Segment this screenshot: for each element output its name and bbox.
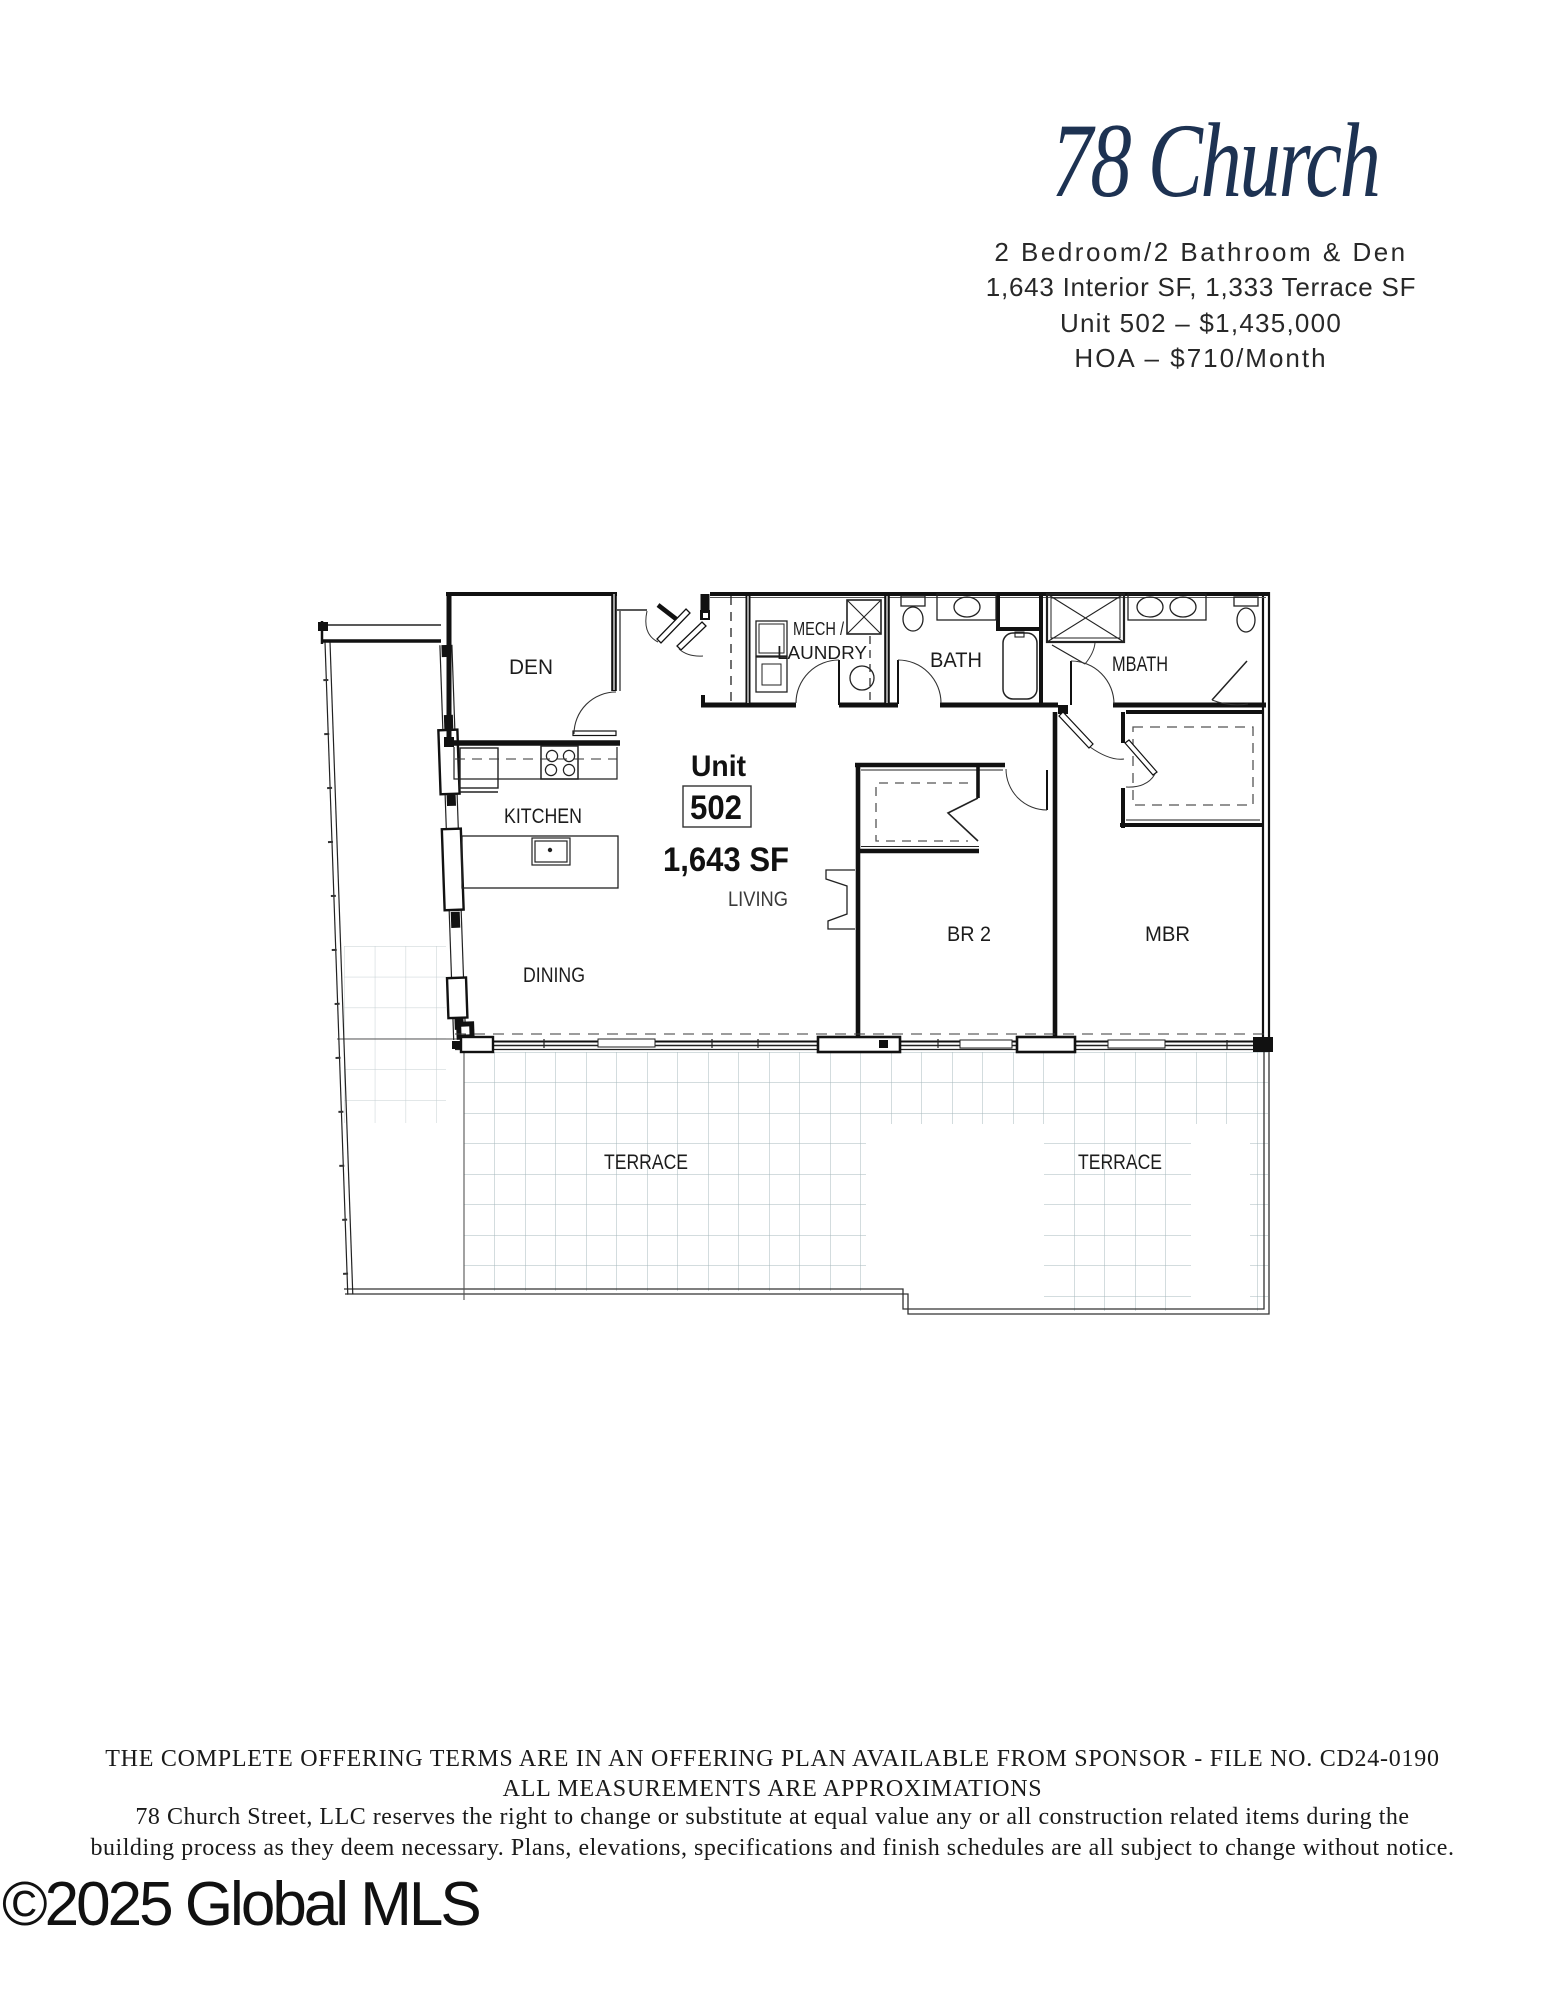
svg-text:KITCHEN: KITCHEN	[504, 805, 582, 828]
svg-text:502: 502	[690, 789, 742, 827]
svg-text:TERRACE: TERRACE	[604, 1151, 688, 1174]
svg-text:LAUNDRY: LAUNDRY	[777, 643, 867, 663]
svg-text:BR 2: BR 2	[947, 923, 991, 946]
svg-text:MBR: MBR	[1145, 923, 1190, 946]
svg-text:Unit: Unit	[691, 750, 746, 783]
svg-text:TERRACE: TERRACE	[1078, 1151, 1162, 1174]
svg-text:LIVING: LIVING	[728, 888, 788, 911]
svg-text:MBATH: MBATH	[1112, 653, 1168, 676]
svg-text:MECH /: MECH /	[793, 619, 844, 639]
svg-text:BATH: BATH	[930, 649, 982, 672]
svg-text:DEN: DEN	[509, 656, 553, 679]
svg-text:DINING: DINING	[523, 964, 585, 987]
svg-text:1,643 SF: 1,643 SF	[663, 841, 789, 879]
